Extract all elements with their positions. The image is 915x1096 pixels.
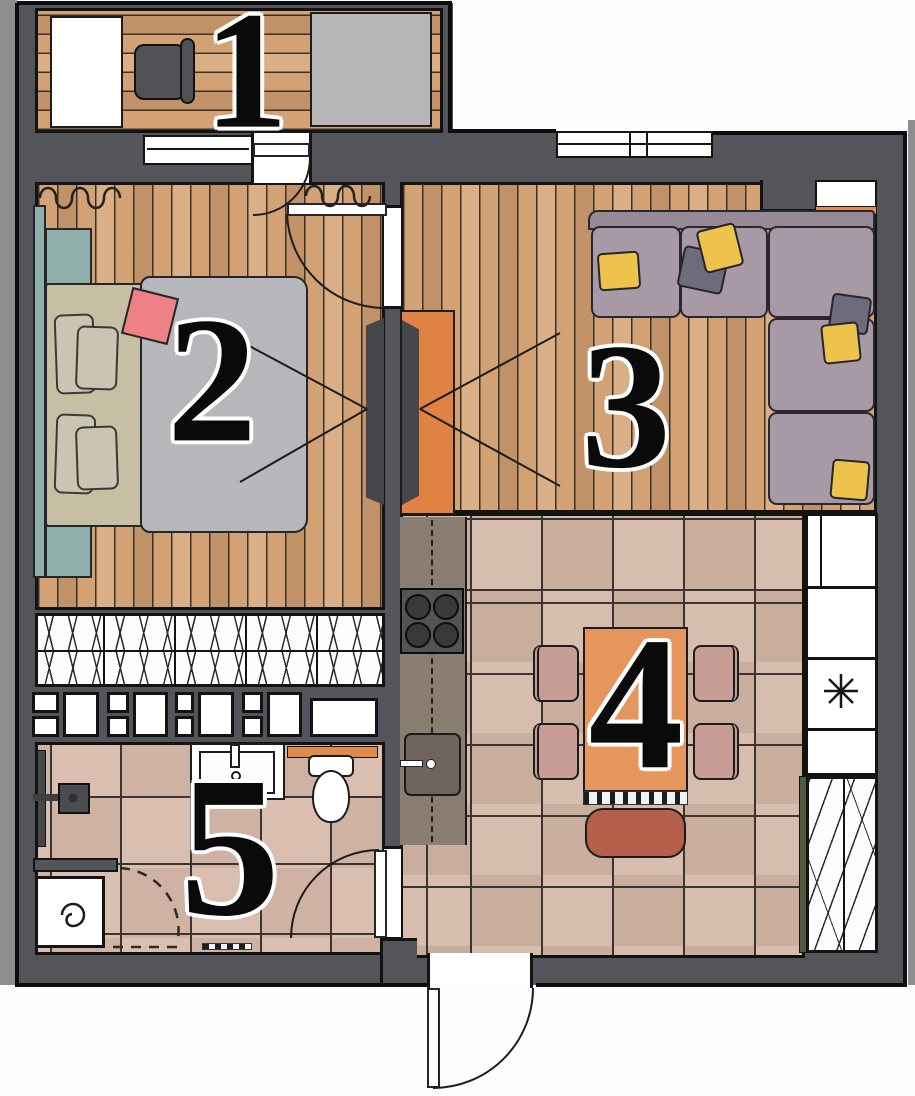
fridge-asterisk-icon (824, 674, 858, 708)
door-swing-arc-balcony (253, 158, 310, 215)
room-label-bathroom: 5 (180, 748, 280, 948)
tv-viewing-lines-bedroom (240, 341, 367, 482)
plan-annotations (0, 0, 915, 1096)
door-swing-arc-entry (433, 988, 533, 1088)
tv-viewing-lines-living (420, 333, 560, 486)
washing-machine-door-icon (62, 904, 84, 926)
room-label-bedroom: 2 (167, 290, 257, 470)
floor-plan: 1 2 3 4 5 (0, 0, 915, 1096)
room-label-kitchen: 4 (589, 609, 684, 799)
room-label-balcony: 1 (204, 0, 288, 155)
shower-door-dashed-arc (120, 868, 179, 938)
door-swing-arc-bedroom (287, 214, 385, 308)
door-swing-arc-bathroom (291, 850, 379, 938)
room-label-living: 3 (581, 316, 671, 496)
shower-knob-icon (69, 794, 78, 803)
curtain-icon (40, 188, 120, 208)
curtain-icon (306, 186, 370, 206)
building-outline (17, 3, 905, 985)
